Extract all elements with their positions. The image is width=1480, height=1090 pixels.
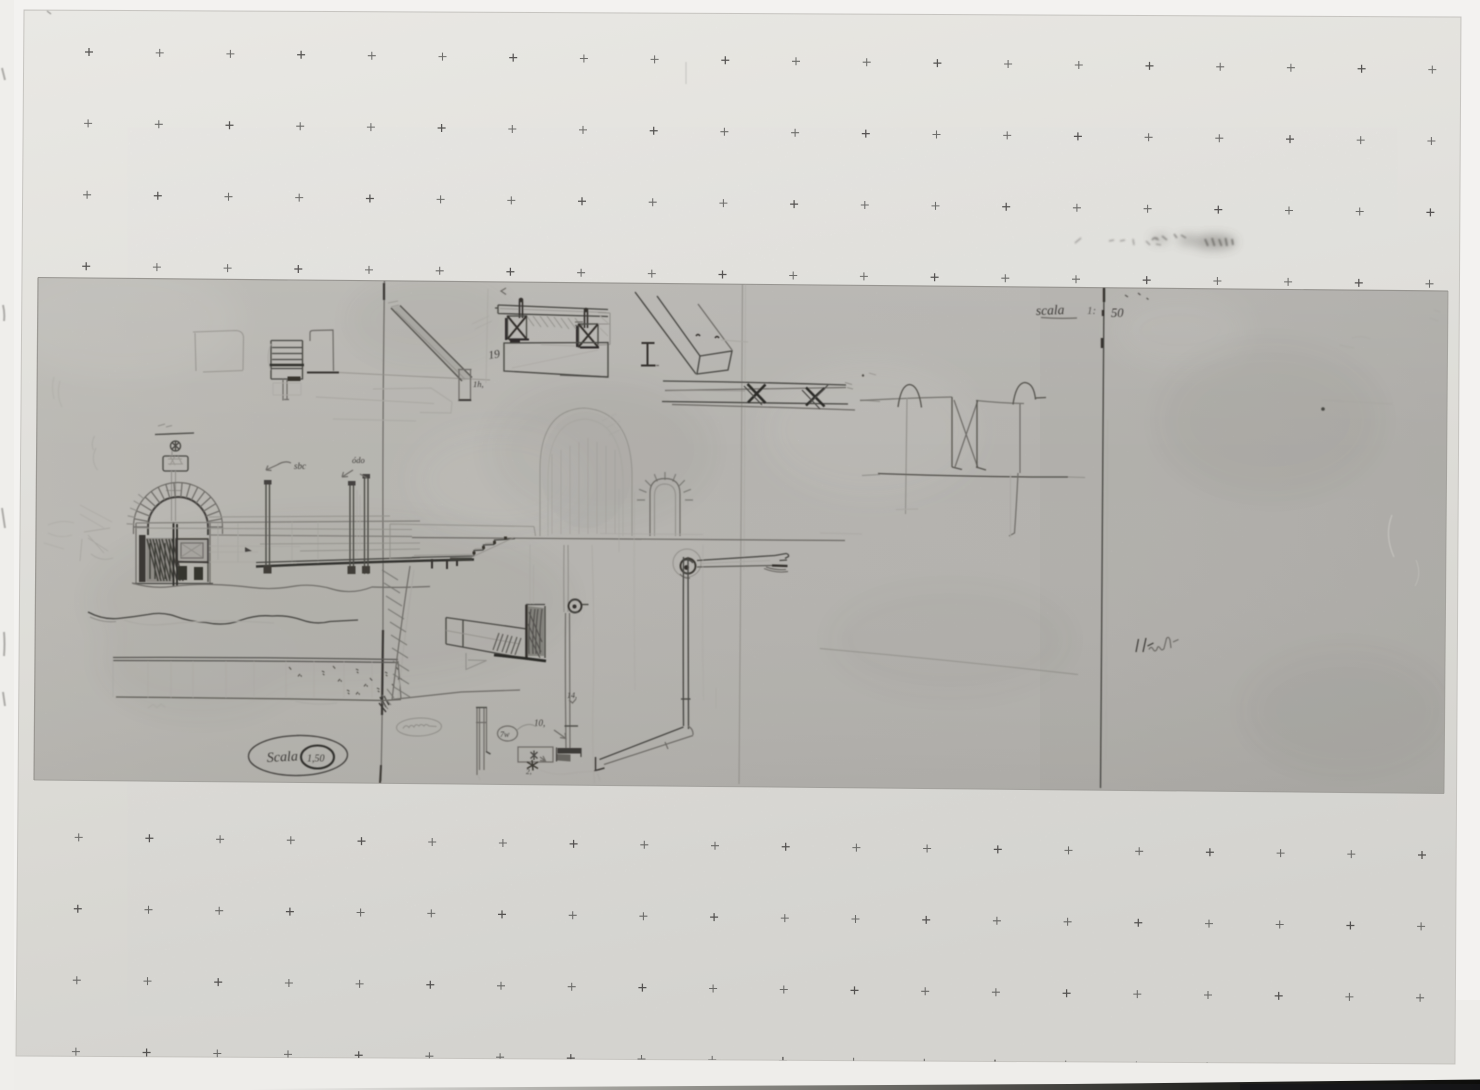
svg-text:1:: 1: — [1087, 305, 1096, 317]
svg-text:Scala: Scala — [266, 749, 298, 766]
svg-text:1h,: 1h, — [473, 379, 484, 389]
svg-text:50: 50 — [1111, 306, 1124, 320]
svg-text:1,50: 1,50 — [307, 754, 325, 765]
svg-text:2,: 2, — [526, 767, 532, 776]
svg-text:ódo: ódo — [352, 455, 365, 465]
svg-text:7w: 7w — [500, 730, 510, 739]
svg-text:19: 19 — [488, 348, 501, 362]
svg-text:14,: 14, — [567, 691, 577, 700]
svg-text:sbc: sbc — [294, 461, 306, 471]
svg-text:scala: scala — [1036, 302, 1065, 318]
